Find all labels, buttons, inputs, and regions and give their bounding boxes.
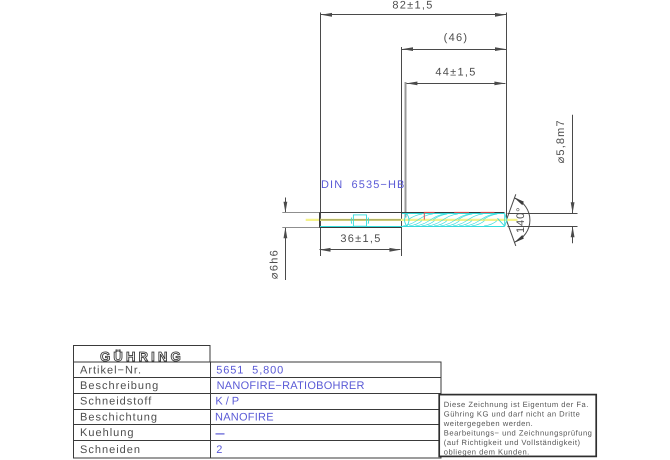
svg-text:Beschichtung: Beschichtung	[80, 411, 158, 423]
svg-text:5651 5,800: 5651 5,800	[216, 365, 284, 377]
svg-text:Gühring KG und darf nicht an D: Gühring KG und darf nicht an Dritte	[444, 410, 581, 419]
svg-text:Schneiden: Schneiden	[80, 444, 141, 456]
svg-text:GÜHRING: GÜHRING	[100, 349, 184, 364]
svg-text:Artikel−Nr.: Artikel−Nr.	[80, 365, 142, 377]
svg-text:44±1,5: 44±1,5	[435, 66, 476, 78]
svg-text:Bearbeitungs− und Zeichnungspr: Bearbeitungs− und Zeichnungsprüfung	[444, 429, 593, 438]
svg-text:2: 2	[216, 444, 222, 456]
svg-text:obliegen dem Kunden.: obliegen dem Kunden.	[444, 448, 530, 457]
svg-text:NANOFIRE−RATIOBOHRER: NANOFIRE−RATIOBOHRER	[217, 380, 365, 392]
svg-text:NANOFIRE: NANOFIRE	[215, 411, 274, 423]
svg-text:⌀6h6: ⌀6h6	[269, 249, 281, 279]
svg-text:K/P: K/P	[215, 396, 242, 408]
svg-text:weitergegeben werden.: weitergegeben werden.	[443, 419, 533, 428]
svg-text:DIN 6535−HB: DIN 6535−HB	[321, 179, 405, 191]
svg-text:(auf Richtigkeit und Vollständ: (auf Richtigkeit und Vollständigkeit)	[444, 438, 581, 447]
svg-text:82±1,5: 82±1,5	[392, 0, 433, 12]
svg-text:Kuehlung: Kuehlung	[80, 427, 135, 439]
svg-text:Schneidstoff: Schneidstoff	[80, 396, 152, 408]
svg-text:Beschreibung: Beschreibung	[80, 380, 159, 392]
svg-text:⌀5,8m7: ⌀5,8m7	[555, 119, 567, 163]
svg-text:(46): (46)	[444, 32, 469, 44]
svg-text:36±1,5: 36±1,5	[340, 233, 381, 245]
svg-text:Diese Zeichnung ist Eigentum d: Diese Zeichnung ist Eigentum der Fa.	[444, 400, 589, 409]
